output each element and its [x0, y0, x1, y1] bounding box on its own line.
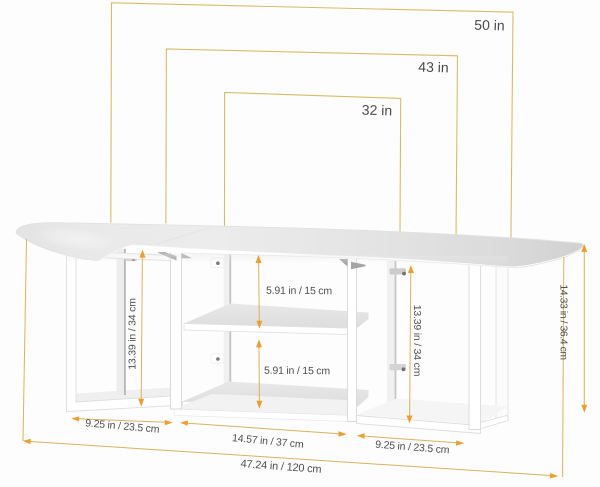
svg-text:50 in: 50 in	[474, 17, 505, 34]
svg-text:5.91 in / 15 cm: 5.91 in / 15 cm	[266, 285, 332, 298]
svg-text:43 in: 43 in	[418, 59, 449, 76]
svg-text:13.39 in / 34 cm: 13.39 in / 34 cm	[126, 298, 138, 370]
svg-text:13.39 in / 34 cm: 13.39 in / 34 cm	[411, 305, 423, 377]
svg-text:5.91 in / 15 cm: 5.91 in / 15 cm	[264, 365, 330, 378]
svg-text:32 in: 32 in	[362, 102, 393, 119]
svg-text:14.33 in / 36.4 cm: 14.33 in / 36.4 cm	[558, 284, 570, 360]
